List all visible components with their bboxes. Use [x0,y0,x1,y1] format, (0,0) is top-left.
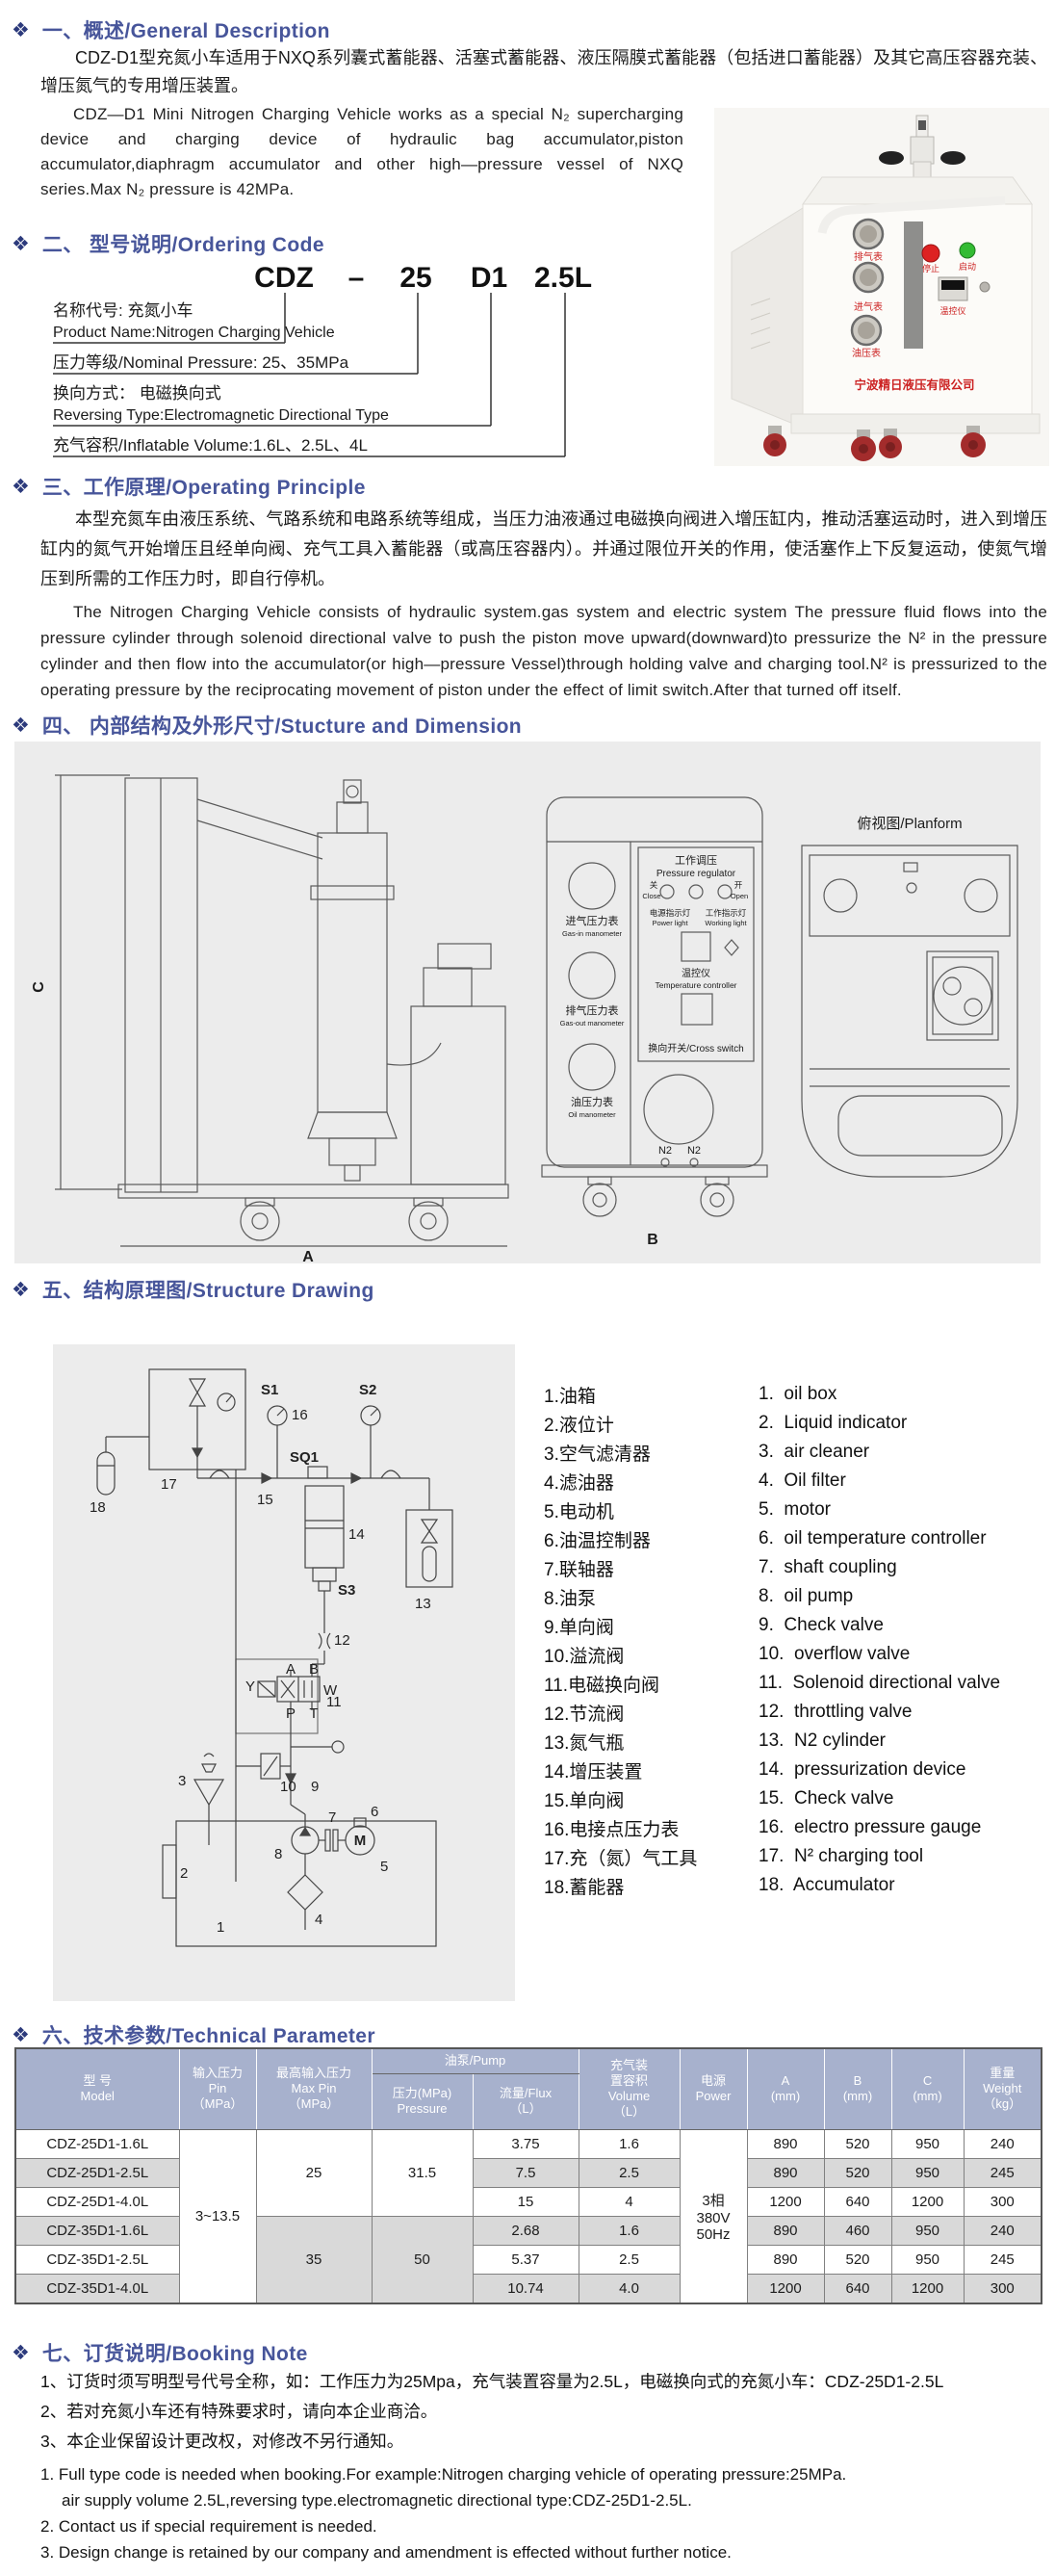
cell: 1200 [891,2187,964,2216]
header-c: C (mm) [891,2048,964,2129]
cell: 890 [747,2158,824,2187]
motor-m-label: M [354,1833,367,1849]
parts-list-item: 6. oil temperature controller [759,1528,1000,1557]
gas-in-gauge-label-zh: 进气压力表 [566,914,619,927]
cell: 890 [747,2245,824,2274]
cell: CDZ-25D1-2.5L [15,2158,179,2187]
dimension-b-label: B [647,1232,658,1248]
side-view-drawing: C A [31,775,508,1263]
temp-controller-label-en: Temperature controller [655,980,736,990]
schematic-label-s2: S2 [359,1382,376,1398]
close-label-en: Close [642,892,660,900]
general-description-zh: CDZ-D1型充氮小车适用于NXQ系列囊式蓄能器、活塞式蓄能器、液压隔膜式蓄能器… [40,44,1047,100]
diamond-cluster-icon [12,2025,30,2045]
parts-list-item: 7. shaft coupling [759,1557,1000,1586]
code-row1-en: Product Name:Nitrogen Charging Vehicle [53,325,335,341]
gas-out-gauge-label-en: Gas-out manometer [560,1019,625,1028]
section-2-title: 二、 型号说明/Ordering Code [42,229,324,258]
section-3-header: 三、工作原理/Operating Principle [12,472,366,501]
cell: CDZ-35D1-2.5L [15,2245,179,2274]
cell-pin: 3~13.5 [179,2129,256,2303]
cell: 2.68 [473,2216,579,2245]
cell: 460 [824,2216,891,2245]
schematic-label-17: 17 [161,1476,177,1493]
start-button[interactable] [960,243,975,258]
parts-list-item: 5.电动机 [544,1497,697,1526]
parts-list-item: 15.单向阀 [544,1786,697,1815]
parts-list-item: 2. Liquid indicator [759,1413,1000,1442]
header-pressure: 压力(MPa) Pressure [372,2073,473,2129]
gauge-exhaust-face [860,225,877,243]
schematic-label-4: 4 [315,1912,322,1928]
working-light-label-en: Working light [705,919,747,927]
cell: 950 [891,2216,964,2245]
charging-valve-body [911,137,934,164]
n2-port-label: N2 [658,1145,672,1157]
operating-principle-zh: 本型充氮车由液压系统、气路系统和电路系统等组成，当压力油液通过电磁换向阀进入增压… [40,505,1047,594]
pressure-regulator-label-zh: 工作调压 [675,854,717,867]
cell: 240 [964,2216,1042,2245]
parts-list-item: 16.电接点压力表 [544,1815,697,1844]
diamond-cluster-icon [12,234,30,254]
cell: 245 [964,2245,1042,2274]
code-part-dash: – [348,262,365,294]
valve-knob-right [940,151,965,165]
gauge-oil-face [858,322,875,339]
table-row: CDZ-35D1-1.6L 35 50 2.68 1.6 890 460 950… [15,2216,1042,2245]
parts-list-item: 12. throttling valve [759,1702,1000,1730]
cell: 950 [891,2158,964,2187]
schematic-label-3: 3 [178,1773,186,1789]
schematic-label-8: 8 [274,1846,282,1862]
start-button-label: 启动 [959,261,976,272]
schematic-label-6: 6 [371,1804,378,1820]
machine-base [791,414,1040,433]
table-row: CDZ-25D1-1.6L 3~13.5 25 31.5 3.75 1.6 3相… [15,2129,1042,2158]
note-line: 3. Design change is retained by our comp… [40,2543,1047,2569]
table-row: CDZ-35D1-4.0L 10.74 4.0 1200 640 1200 30… [15,2274,1042,2303]
gauge-intake-label: 进气表 [854,300,883,313]
section-1-title: 一、概述/General Description [42,15,330,44]
stop-button-label: 停止 [922,263,939,273]
parts-list-item: 10. overflow valve [759,1644,1000,1673]
parts-list-en: 1. oil box2. Liquid indicator3. air clea… [759,1384,1000,1904]
hydraulic-schematic: 18 17 S1 16 S2 SQ1 15 14 13 S3 12 11 10 … [53,1344,515,2001]
cell-max-pin-35: 35 [256,2216,372,2303]
schematic-label-7: 7 [328,1809,336,1826]
section-7-header: 七、订货说明/Booking Note [12,2338,308,2367]
dimension-c-label: C [31,981,47,993]
valve-knob-left [879,151,904,165]
technical-parameter-table: 型 号 Model 输入压力 Pin （MPa） 最高输入压力 Max Pin … [14,2047,1042,2304]
code-part-25: 25 [399,262,431,294]
diamond-cluster-icon [12,716,30,736]
parts-list-item: 4. Oil filter [759,1470,1000,1499]
cell: 10.74 [473,2274,579,2303]
company-name: 宁波精日液压有限公司 [854,377,974,392]
general-description-en: CDZ—D1 Mini Nitrogen Charging Vehicle wo… [40,102,683,202]
parts-list-item: 18. Accumulator [759,1875,1000,1904]
cell: 2.5 [579,2245,680,2274]
cell-max-pin-25: 25 [256,2129,372,2216]
section-4-title: 四、 内部结构及外形尺寸/Stucture and Dimension [42,711,522,740]
parts-list-item: 9. Check valve [759,1615,1000,1644]
dimension-drawing-panel: C A 进气压力表 Gas-in manometer 排气压力表 Gas-out… [14,742,1041,1263]
table-row: CDZ-25D1-4.0L 15 4 1200 640 1200 300 [15,2187,1042,2216]
parts-list-item: 9.单向阀 [544,1613,697,1642]
cell-pressure-25: 31.5 [372,2129,473,2216]
parts-list-item: 16. electro pressure gauge [759,1817,1000,1846]
working-light-label-zh: 工作指示灯 [706,908,747,918]
parts-list-item: 11. Solenoid directional valve [759,1673,1000,1702]
schematic-label-12: 12 [334,1632,350,1649]
n2-port-label: N2 [687,1145,701,1157]
schematic-label-s1: S1 [261,1382,278,1398]
note-line: air supply volume 2.5L,reversing type.el… [40,2491,1047,2517]
cell: 890 [747,2129,824,2158]
note-line: 2. Contact us if special requirement is … [40,2517,1047,2543]
valve-base [913,162,931,179]
diamond-cluster-icon [12,1280,30,1300]
pressure-regulator-label-en: Pressure regulator [656,869,736,879]
table-row: CDZ-35D1-2.5L 5.37 2.5 890 520 950 245 [15,2245,1042,2274]
cell-power: 3相 380V 50Hz [680,2129,747,2303]
stop-button[interactable] [922,245,939,262]
parts-list-item: 8. oil pump [759,1586,1000,1615]
parts-list-item: 14. pressurization device [759,1759,1000,1788]
gauge-intake-face [860,269,877,286]
schematic-label-15: 15 [257,1492,273,1508]
cell: 300 [964,2274,1042,2303]
section-7-title: 七、订货说明/Booking Note [42,2338,308,2367]
parts-list-item: 1. oil box [759,1384,1000,1413]
cell: 15 [473,2187,579,2216]
charging-valve-core [918,120,926,130]
cell: 1.6 [579,2129,680,2158]
cell: 1.6 [579,2216,680,2245]
section-5-header: 五、结构原理图/Structure Drawing [12,1275,374,1304]
parts-list-item: 15. Check valve [759,1788,1000,1817]
front-slot [904,221,923,349]
oil-gauge-label-zh: 油压力表 [571,1095,613,1108]
open-label-zh: 开 [734,880,743,890]
cell: 640 [824,2274,891,2303]
schematic-label-14: 14 [348,1526,365,1543]
gas-out-gauge-label-zh: 排气压力表 [566,1003,619,1017]
cell: 7.5 [473,2158,579,2187]
note-line: 3、本企业保留设计更改权，对修改不另行通知。 [40,2429,1047,2459]
parts-list-item: 13.氮气瓶 [544,1729,697,1757]
parts-list-item: 17.充（氮）气工具 [544,1844,697,1873]
parts-list-item: 7.联轴器 [544,1555,697,1584]
code-part-cdz: CDZ [254,262,314,294]
product-photo: 排气表 进气表 油压表 停止 启动 温控仪 宁波精日液压有限公司 [714,108,1049,466]
close-label-zh: 关 [650,880,658,890]
ordering-code-diagram: CDZ – 25 D1 2.5L 名称代号: 充氮小车 Product Name… [39,256,674,468]
temp-controller-label-zh: 温控仪 [682,967,710,979]
code-row4-zh: 充气容积/Inflatable Volume:1.6L、2.5L、4L [53,436,368,455]
note-line: 2、若对充氮小车还有特殊要求时，请向本企业商洽。 [40,2399,1047,2429]
power-light-label-zh: 电源指示灯 [650,908,691,918]
booking-notes-en: 1. Full type code is needed when booking… [40,2465,1047,2569]
cross-switch-label: 换向开关/Cross switch [648,1042,743,1054]
parts-list-item: 8.油泵 [544,1584,697,1613]
schematic-label-9: 9 [311,1779,319,1795]
power-light-label-en: Power light [652,919,688,927]
schematic-label-sq1: SQ1 [290,1449,319,1466]
section-4-header: 四、 内部结构及外形尺寸/Stucture and Dimension [12,711,522,740]
header-pin: 输入压力 Pin （MPa） [179,2048,256,2129]
open-label-en: Open [731,892,748,900]
cell: 520 [824,2158,891,2187]
operating-principle-en: The Nitrogen Charging Vehicle consists o… [40,599,1047,703]
header-b: B (mm) [824,2048,891,2129]
front-view-drawing: 进气压力表 Gas-in manometer 排气压力表 Gas-out man… [542,797,767,1248]
top-view-drawing: 俯视图/Planform [802,816,1017,1177]
valve-port-b: B [309,1661,319,1678]
parts-list-item: 10.溢流阀 [544,1642,697,1671]
schematic-label-18: 18 [90,1499,106,1516]
parts-list-item: 6.油温控制器 [544,1526,697,1555]
cell: 245 [964,2158,1042,2187]
schematic-label-1: 1 [217,1919,224,1936]
cell-pressure-35: 50 [372,2216,473,2303]
temp-controller-screen [941,280,965,290]
cell: 1200 [891,2274,964,2303]
code-row2-zh: 压力等级/Nominal Pressure: 25、35MPa [53,353,349,372]
parts-list-item: 17. N² charging tool [759,1846,1000,1875]
parts-list-item: 13. N2 cylinder [759,1730,1000,1759]
gauge-exhaust-label: 排气表 [854,250,883,263]
gauge-oil-label: 油压表 [852,347,881,359]
cell: 2.5 [579,2158,680,2187]
schematic-label-10: 10 [280,1779,296,1795]
cell: 1200 [747,2187,824,2216]
booking-notes-zh: 1、订货时须写明型号代号全称，如：工作压力为25Mpa，充气装置容量为2.5L，… [40,2369,1047,2459]
valve-port-t: T [309,1705,318,1722]
diamond-cluster-icon [12,2343,30,2363]
cell: 4 [579,2187,680,2216]
schematic-label-5: 5 [380,1859,388,1875]
valve-port-a: A [286,1661,296,1678]
diamond-cluster-icon [12,20,30,40]
parts-list-item: 3.空气滤清器 [544,1440,697,1469]
cell: 300 [964,2187,1042,2216]
header-power: 电源 Power [680,2048,747,2129]
header-max-pin: 最高输入压力 Max Pin （MPa） [256,2048,372,2129]
cell: 4.0 [579,2274,680,2303]
cell: 640 [824,2187,891,2216]
schematic-label-13: 13 [415,1596,431,1612]
header-model: 型 号 Model [15,2048,179,2129]
header-pump-group: 油泵/Pump [372,2048,579,2073]
code-part-25l: 2.5L [534,262,592,294]
section-6-title: 六、技术参数/Technical Parameter [42,2020,375,2049]
cell: 3.75 [473,2129,579,2158]
cell: CDZ-25D1-4.0L [15,2187,179,2216]
schematic-label-16: 16 [292,1407,308,1423]
parts-list-item: 4.滤油器 [544,1469,697,1497]
oil-gauge-label-en: Oil manometer [568,1110,616,1119]
parts-list-item: 12.节流阀 [544,1700,697,1729]
section-6-header: 六、技术参数/Technical Parameter [12,2020,375,2049]
header-a: A (mm) [747,2048,824,2129]
section-2-header: 二、 型号说明/Ordering Code [12,229,324,258]
cell: 5.37 [473,2245,579,2274]
cell: 520 [824,2129,891,2158]
section-5-title: 五、结构原理图/Structure Drawing [42,1275,374,1304]
code-row3-en: Reversing Type:Electromagnetic Direction… [53,407,389,424]
code-row1-zh: 名称代号: 充氮小车 [53,301,193,320]
header-volume: 充气装 置容积 Volume （L） [579,2048,680,2129]
cell: 950 [891,2129,964,2158]
cell: 1200 [747,2274,824,2303]
key-switch[interactable] [980,282,990,292]
parts-list-item: 14.增压装置 [544,1757,697,1786]
catalog-page: { "colors": {"accent":"#47559a","icon_na… [0,0,1055,2576]
schematic-label-s3: S3 [338,1582,355,1599]
diamond-cluster-icon [12,477,30,497]
dimension-a-label: A [302,1249,314,1263]
parts-list-item: 2.液位计 [544,1411,697,1440]
gas-in-gauge-label-en: Gas-in manometer [562,929,623,938]
parts-list-zh: 1.油箱2.液位计3.空气滤清器4.滤油器5.电动机6.油温控制器7.联轴器8.… [544,1382,697,1902]
planform-label: 俯视图/Planform [857,816,962,832]
note-line: 1. Full type code is needed when booking… [40,2465,1047,2491]
header-weight: 重量 Weight （kg） [964,2048,1042,2129]
cell: CDZ-25D1-1.6L [15,2129,179,2158]
header-flux: 流量/Flux （L） [473,2073,579,2129]
schematic-label-2: 2 [180,1865,188,1882]
valve-port-p: P [286,1705,296,1722]
parts-list-item: 1.油箱 [544,1382,697,1411]
cell: 520 [824,2245,891,2274]
parts-list-item: 5. motor [759,1499,1000,1528]
cell: CDZ-35D1-4.0L [15,2274,179,2303]
cell: CDZ-35D1-1.6L [15,2216,179,2245]
section-3-title: 三、工作原理/Operating Principle [42,472,366,501]
table-row: CDZ-25D1-2.5L 7.5 2.5 890 520 950 245 [15,2158,1042,2187]
parts-list-item: 3. air cleaner [759,1442,1000,1470]
parts-list-item: 11.电磁换向阀 [544,1671,697,1700]
temp-controller-label: 温控仪 [939,305,965,316]
valve-label-w: W [323,1682,338,1699]
note-line: 1、订货时须写明型号代号全称，如：工作压力为25Mpa，充气装置容量为2.5L，… [40,2369,1047,2399]
code-part-d1: D1 [471,262,507,294]
cell: 240 [964,2129,1042,2158]
code-row3-zh: 换向方式： 电磁换向式 [53,384,221,403]
parts-list-item: 18.蓄能器 [544,1873,697,1902]
cell: 950 [891,2245,964,2274]
cell: 890 [747,2216,824,2245]
valve-solenoid-y: Y [245,1678,255,1695]
section-1-header: 一、概述/General Description [12,15,330,44]
